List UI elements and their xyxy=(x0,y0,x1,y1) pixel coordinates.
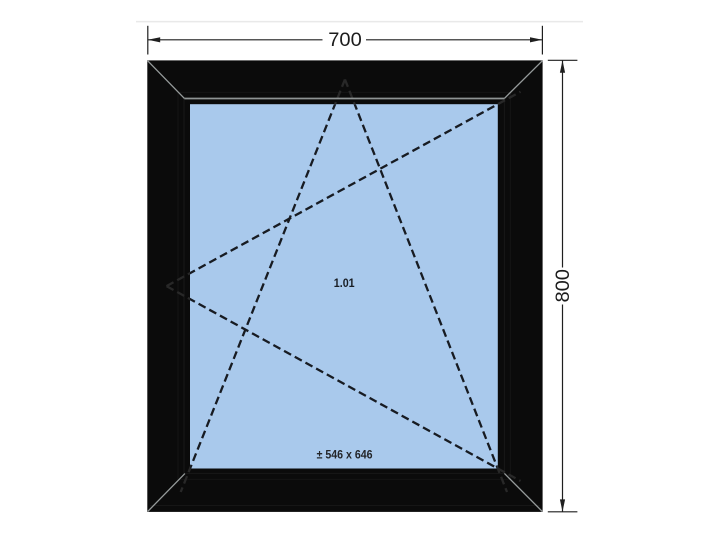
svg-text:± 546 x 646: ± 546 x 646 xyxy=(317,447,373,461)
svg-text:700: 700 xyxy=(328,29,362,51)
svg-text:1.01: 1.01 xyxy=(334,278,355,290)
svg-text:800: 800 xyxy=(552,269,574,303)
